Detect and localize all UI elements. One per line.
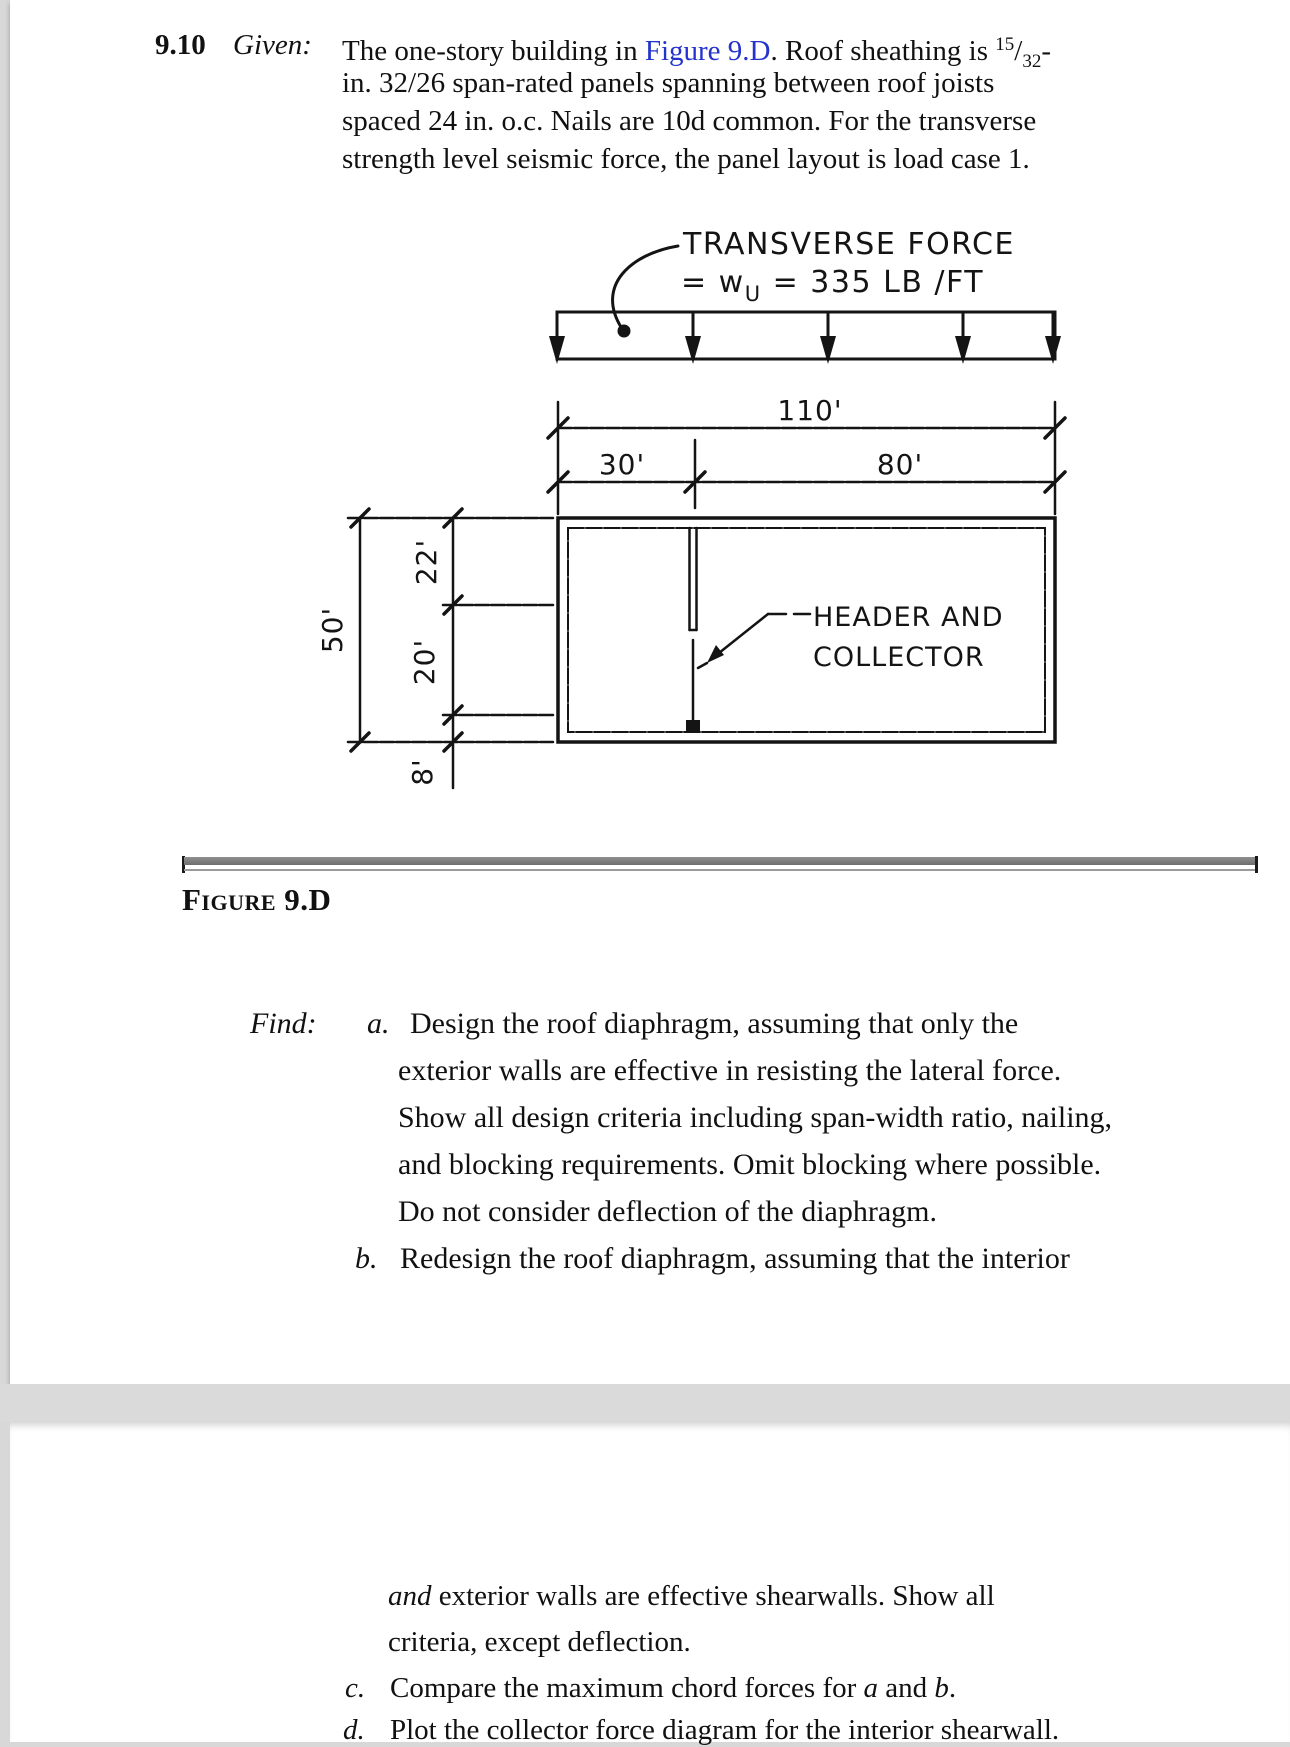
- dim-80-label: 80': [877, 448, 923, 481]
- dim-110-label: 110': [777, 394, 842, 427]
- item-c-marker: c.: [345, 1672, 365, 1705]
- find-a-line-3: Show all design criteria including span-…: [398, 1094, 1112, 1141]
- page-2: and exterior walls are effective shearwa…: [10, 1422, 1290, 1742]
- book-viewer: { "colors": { "link_blue": "#2333cc", "p…: [0, 0, 1290, 1742]
- header-collector-label-2: COLLECTOR: [813, 642, 985, 673]
- dim-20-label: 20': [408, 639, 441, 685]
- problem-number: 9.10: [155, 26, 206, 64]
- cont-line-1: and exterior walls are effective shearwa…: [388, 1580, 995, 1613]
- header-leader: [698, 614, 810, 668]
- find-a-line-1: Design the roof diaphragm, assuming that…: [410, 1000, 1018, 1047]
- item-c-line: Compare the maximum chord forces for a a…: [390, 1672, 956, 1705]
- given-line-3: spaced 24 in. o.c. Nails are 10d common.…: [342, 102, 1036, 140]
- force-arrows: [549, 314, 1061, 364]
- page-1: 9.10 Given: The one-story building in Fi…: [10, 0, 1290, 1384]
- given-line-4: strength level seismic force, the panel …: [342, 140, 1030, 178]
- transverse-force-label: TRANSVERSE FORCE: [682, 227, 1015, 262]
- interior-wall: [686, 528, 700, 733]
- force-bar: [557, 312, 1055, 359]
- figure-9d-link[interactable]: Figure 9.D: [645, 35, 771, 67]
- cont-line-2: criteria, except deflection.: [388, 1626, 691, 1659]
- fraction-numerator: 15: [995, 34, 1014, 55]
- find-b-line: Redesign the roof diaphragm, assuming th…: [400, 1235, 1070, 1282]
- dim-lines-left: [348, 518, 553, 788]
- transverse-force-value: = wU = 335 LB /FT: [681, 265, 984, 306]
- item-d-line: Plot the collector force diagram for the…: [390, 1714, 1059, 1747]
- item-a-marker: a.: [367, 1000, 390, 1047]
- plan-figure: TRANSVERSE FORCE = wU = 335 LB /FT 110' …: [260, 190, 1080, 802]
- dim-22-label: 22': [410, 539, 443, 585]
- find-label: Find:: [250, 1000, 317, 1047]
- item-d-marker: d.: [343, 1714, 365, 1747]
- find-a-line-2: exterior walls are effective in resistin…: [398, 1047, 1061, 1094]
- find-a-line-4: and blocking requirements. Omit blocking…: [398, 1141, 1101, 1188]
- dim-8-label: 8': [406, 758, 439, 786]
- leader-dot: [618, 325, 631, 338]
- page-gap: [0, 1384, 1290, 1422]
- dim-50-label: 50': [316, 607, 349, 653]
- header-collector-label-1: HEADER AND: [813, 602, 1003, 633]
- dim-30-label: 30': [599, 448, 645, 481]
- leader-curve: [613, 246, 678, 327]
- figure-divider-rule: [182, 857, 1258, 873]
- figure-caption: Figure 9.D: [182, 882, 331, 918]
- fraction-denominator: 32: [1022, 51, 1041, 72]
- given-label: Given:: [233, 26, 312, 64]
- given-line-2: in. 32/26 span-rated panels spanning bet…: [342, 64, 994, 102]
- find-a-line-5: Do not consider deflection of the diaphr…: [398, 1188, 937, 1235]
- rule-right-cap: [1255, 856, 1258, 873]
- item-b-marker: b.: [355, 1235, 378, 1282]
